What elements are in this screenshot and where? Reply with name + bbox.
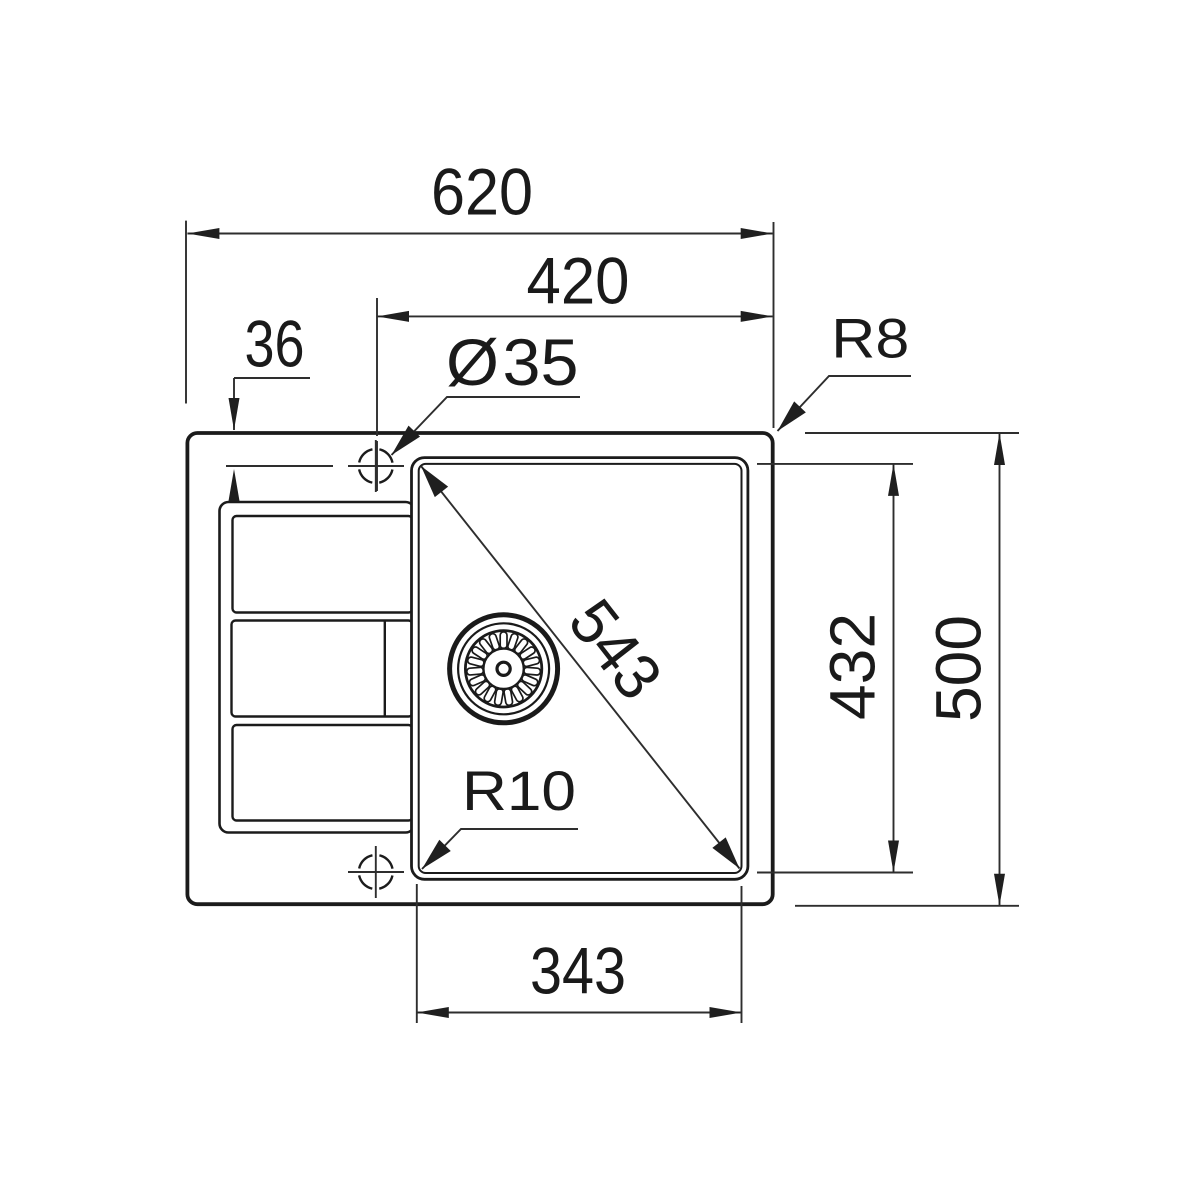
svg-text:36: 36: [245, 307, 305, 381]
svg-text:35: 35: [503, 325, 579, 399]
svg-text:R10: R10: [462, 759, 576, 822]
svg-text:Ø: Ø: [446, 325, 499, 399]
svg-text:420: 420: [527, 244, 630, 318]
svg-text:620: 620: [431, 155, 533, 229]
svg-text:432: 432: [817, 613, 889, 720]
svg-text:500: 500: [923, 615, 995, 722]
svg-text:R8: R8: [831, 307, 909, 370]
svg-text:343: 343: [530, 934, 626, 1008]
